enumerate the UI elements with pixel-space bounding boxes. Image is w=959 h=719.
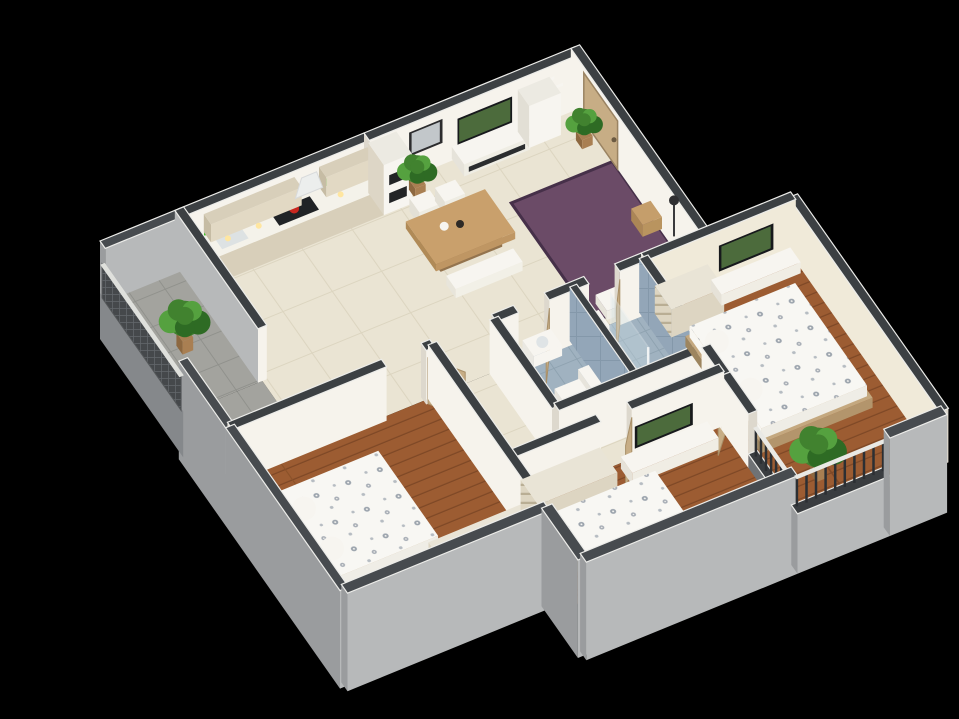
bathroom-a-basin (536, 336, 548, 348)
floor-lamp-shade (669, 195, 679, 205)
floor-plan-render (0, 0, 959, 719)
cabinet-light-2 (256, 223, 262, 229)
cabinet-light-3 (338, 191, 344, 197)
entrance-door-knob (612, 137, 617, 142)
table-decor (456, 220, 464, 228)
floor-plan-3d-svg (0, 0, 959, 719)
master-se-outer-wall (884, 406, 947, 536)
table-plate (440, 222, 449, 231)
cabinet-light-1 (225, 235, 231, 241)
tall-cabinet (518, 77, 561, 148)
